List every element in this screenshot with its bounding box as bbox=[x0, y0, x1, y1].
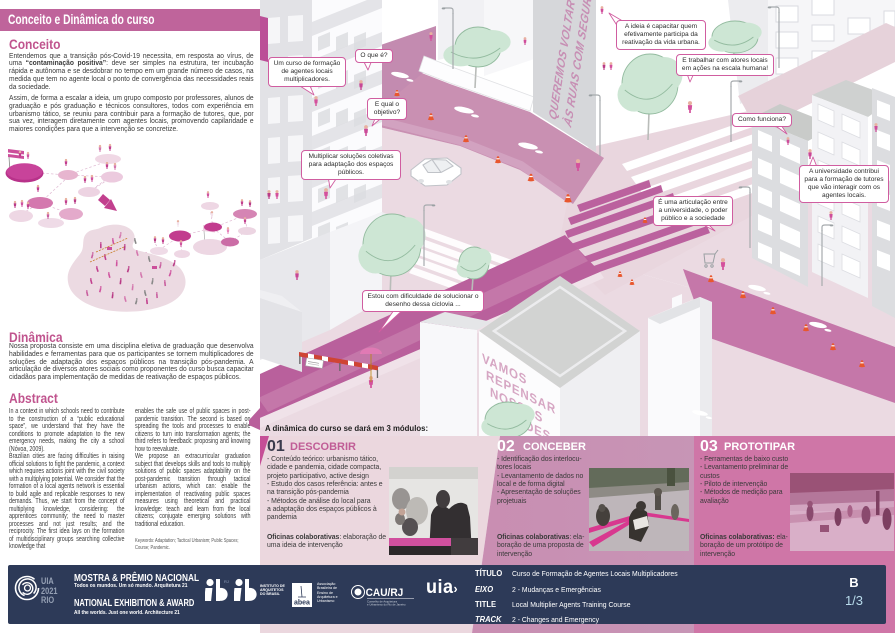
svg-text:e Urbanismo do Rio de Janeiro: e Urbanismo do Rio de Janeiro bbox=[367, 603, 406, 607]
svg-text:RJ: RJ bbox=[224, 579, 229, 584]
svg-text:CAU/RJ: CAU/RJ bbox=[366, 587, 404, 599]
svg-text:abea: abea bbox=[294, 600, 310, 607]
